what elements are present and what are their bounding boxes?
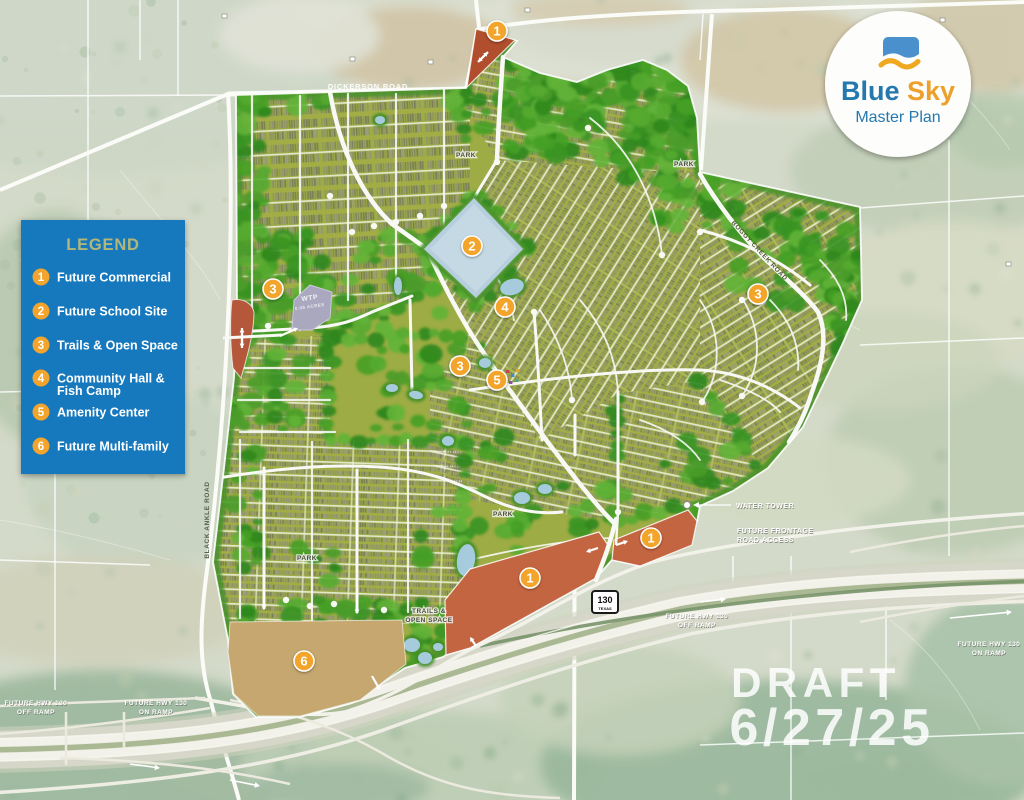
svg-text:WATER TOWER: WATER TOWER	[736, 503, 794, 510]
svg-text:FUTURE HWY 130: FUTURE HWY 130	[125, 700, 188, 707]
svg-text:ROAD ACCESS: ROAD ACCESS	[737, 537, 794, 544]
svg-text:5: 5	[38, 407, 45, 419]
svg-text:TEXAS: TEXAS	[598, 606, 612, 611]
svg-text:TRAILS &: TRAILS &	[412, 608, 446, 615]
svg-text:LEGEND: LEGEND	[66, 236, 140, 254]
svg-text:2: 2	[38, 306, 44, 318]
svg-text:3: 3	[269, 282, 276, 297]
svg-text:130: 130	[597, 595, 612, 605]
svg-text:6: 6	[38, 441, 44, 453]
svg-text:FUTURE HWY 130: FUTURE HWY 130	[958, 641, 1021, 648]
svg-text:3: 3	[38, 340, 44, 352]
svg-text:1: 1	[647, 531, 654, 546]
svg-text:4: 4	[38, 373, 45, 385]
svg-text:Amenity Center: Amenity Center	[57, 406, 150, 420]
svg-text:Future Multi-family: Future Multi-family	[57, 440, 169, 454]
svg-text:PARK: PARK	[493, 511, 513, 518]
svg-text:3: 3	[754, 287, 761, 302]
svg-text:Fish Camp: Fish Camp	[57, 384, 121, 398]
svg-text:OPEN SPACE: OPEN SPACE	[405, 617, 452, 624]
svg-text:4: 4	[501, 300, 509, 315]
svg-text:PARK: PARK	[456, 152, 476, 159]
svg-text:PARK: PARK	[297, 555, 317, 562]
svg-text:1: 1	[526, 571, 533, 586]
svg-text:Blue Sky: Blue Sky	[841, 76, 955, 106]
svg-text:PARK: PARK	[674, 161, 694, 168]
svg-text:3: 3	[456, 359, 463, 374]
svg-text:FUTURE HWY 130: FUTURE HWY 130	[5, 700, 68, 707]
svg-text:DICKERSON ROAD: DICKERSON ROAD	[328, 82, 408, 91]
svg-text:BLACK ANKLE ROAD: BLACK ANKLE ROAD	[204, 481, 211, 558]
svg-text:ON RAMP: ON RAMP	[972, 650, 1006, 657]
svg-text:Trails & Open Space: Trails & Open Space	[57, 339, 178, 353]
svg-text:1: 1	[493, 24, 500, 39]
svg-text:Master Plan: Master Plan	[855, 109, 940, 126]
svg-text:OFF RAMP: OFF RAMP	[17, 709, 55, 716]
svg-text:6: 6	[300, 654, 307, 669]
svg-text:2: 2	[468, 239, 475, 254]
svg-text:1: 1	[38, 272, 45, 284]
svg-text:5: 5	[493, 373, 500, 388]
svg-text:ON RAMP: ON RAMP	[139, 709, 173, 716]
svg-text:Future Commercial: Future Commercial	[57, 271, 171, 285]
svg-text:Future School Site: Future School Site	[57, 305, 167, 319]
svg-text:OFF RAMP: OFF RAMP	[678, 622, 716, 629]
svg-text:6/27/25: 6/27/25	[730, 699, 935, 757]
svg-text:FUTURE FRONTAGE: FUTURE FRONTAGE	[737, 528, 814, 535]
svg-text:FUTURE HWY 130: FUTURE HWY 130	[666, 613, 729, 620]
